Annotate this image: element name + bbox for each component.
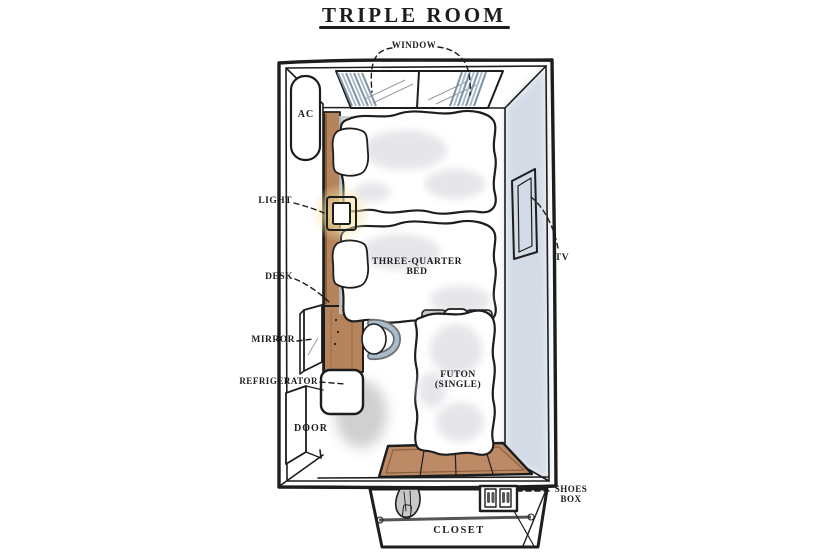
shoes-box-label-line2: BOX <box>555 495 588 505</box>
ac-label: AC <box>298 110 314 121</box>
light-label: LIGHT <box>252 196 292 206</box>
three-quarter-bed-label: THREE-QUARTER BED <box>372 257 462 278</box>
ceiling-light <box>311 183 371 243</box>
closet-label: CLOSET <box>433 525 485 536</box>
desk-chair <box>362 323 397 356</box>
title-underline <box>319 26 510 29</box>
floorplan-drawing <box>0 0 840 560</box>
pillow <box>333 128 369 175</box>
refrigerator <box>321 370 363 414</box>
window-label: WINDOW <box>392 41 437 51</box>
window <box>336 71 503 108</box>
floorplan-canvas: TRIPLE ROOM WINDOW AC LIGHT DESK MIRROR … <box>0 0 840 560</box>
three-quarter-bed-label-line2: BED <box>372 267 462 277</box>
closet <box>370 486 547 547</box>
futon-label-line1: FUTON <box>435 370 481 380</box>
three-quarter-bed-label-line1: THREE-QUARTER <box>372 257 462 267</box>
right-wall-shading <box>505 66 549 481</box>
futon-label: FUTON (SINGLE) <box>435 370 481 391</box>
desk-label: DESK <box>253 272 293 282</box>
shoes-box-label: SHOES BOX <box>555 485 588 504</box>
futon-label-line2: (SINGLE) <box>435 380 481 390</box>
mirror-label: MIRROR <box>240 335 295 345</box>
page-title: TRIPLE ROOM <box>322 4 506 27</box>
tv-label: TV <box>555 253 569 263</box>
door-label: DOOR <box>294 424 328 435</box>
pillow <box>333 240 369 287</box>
refrigerator-label: REFRIGERATOR <box>230 377 318 387</box>
